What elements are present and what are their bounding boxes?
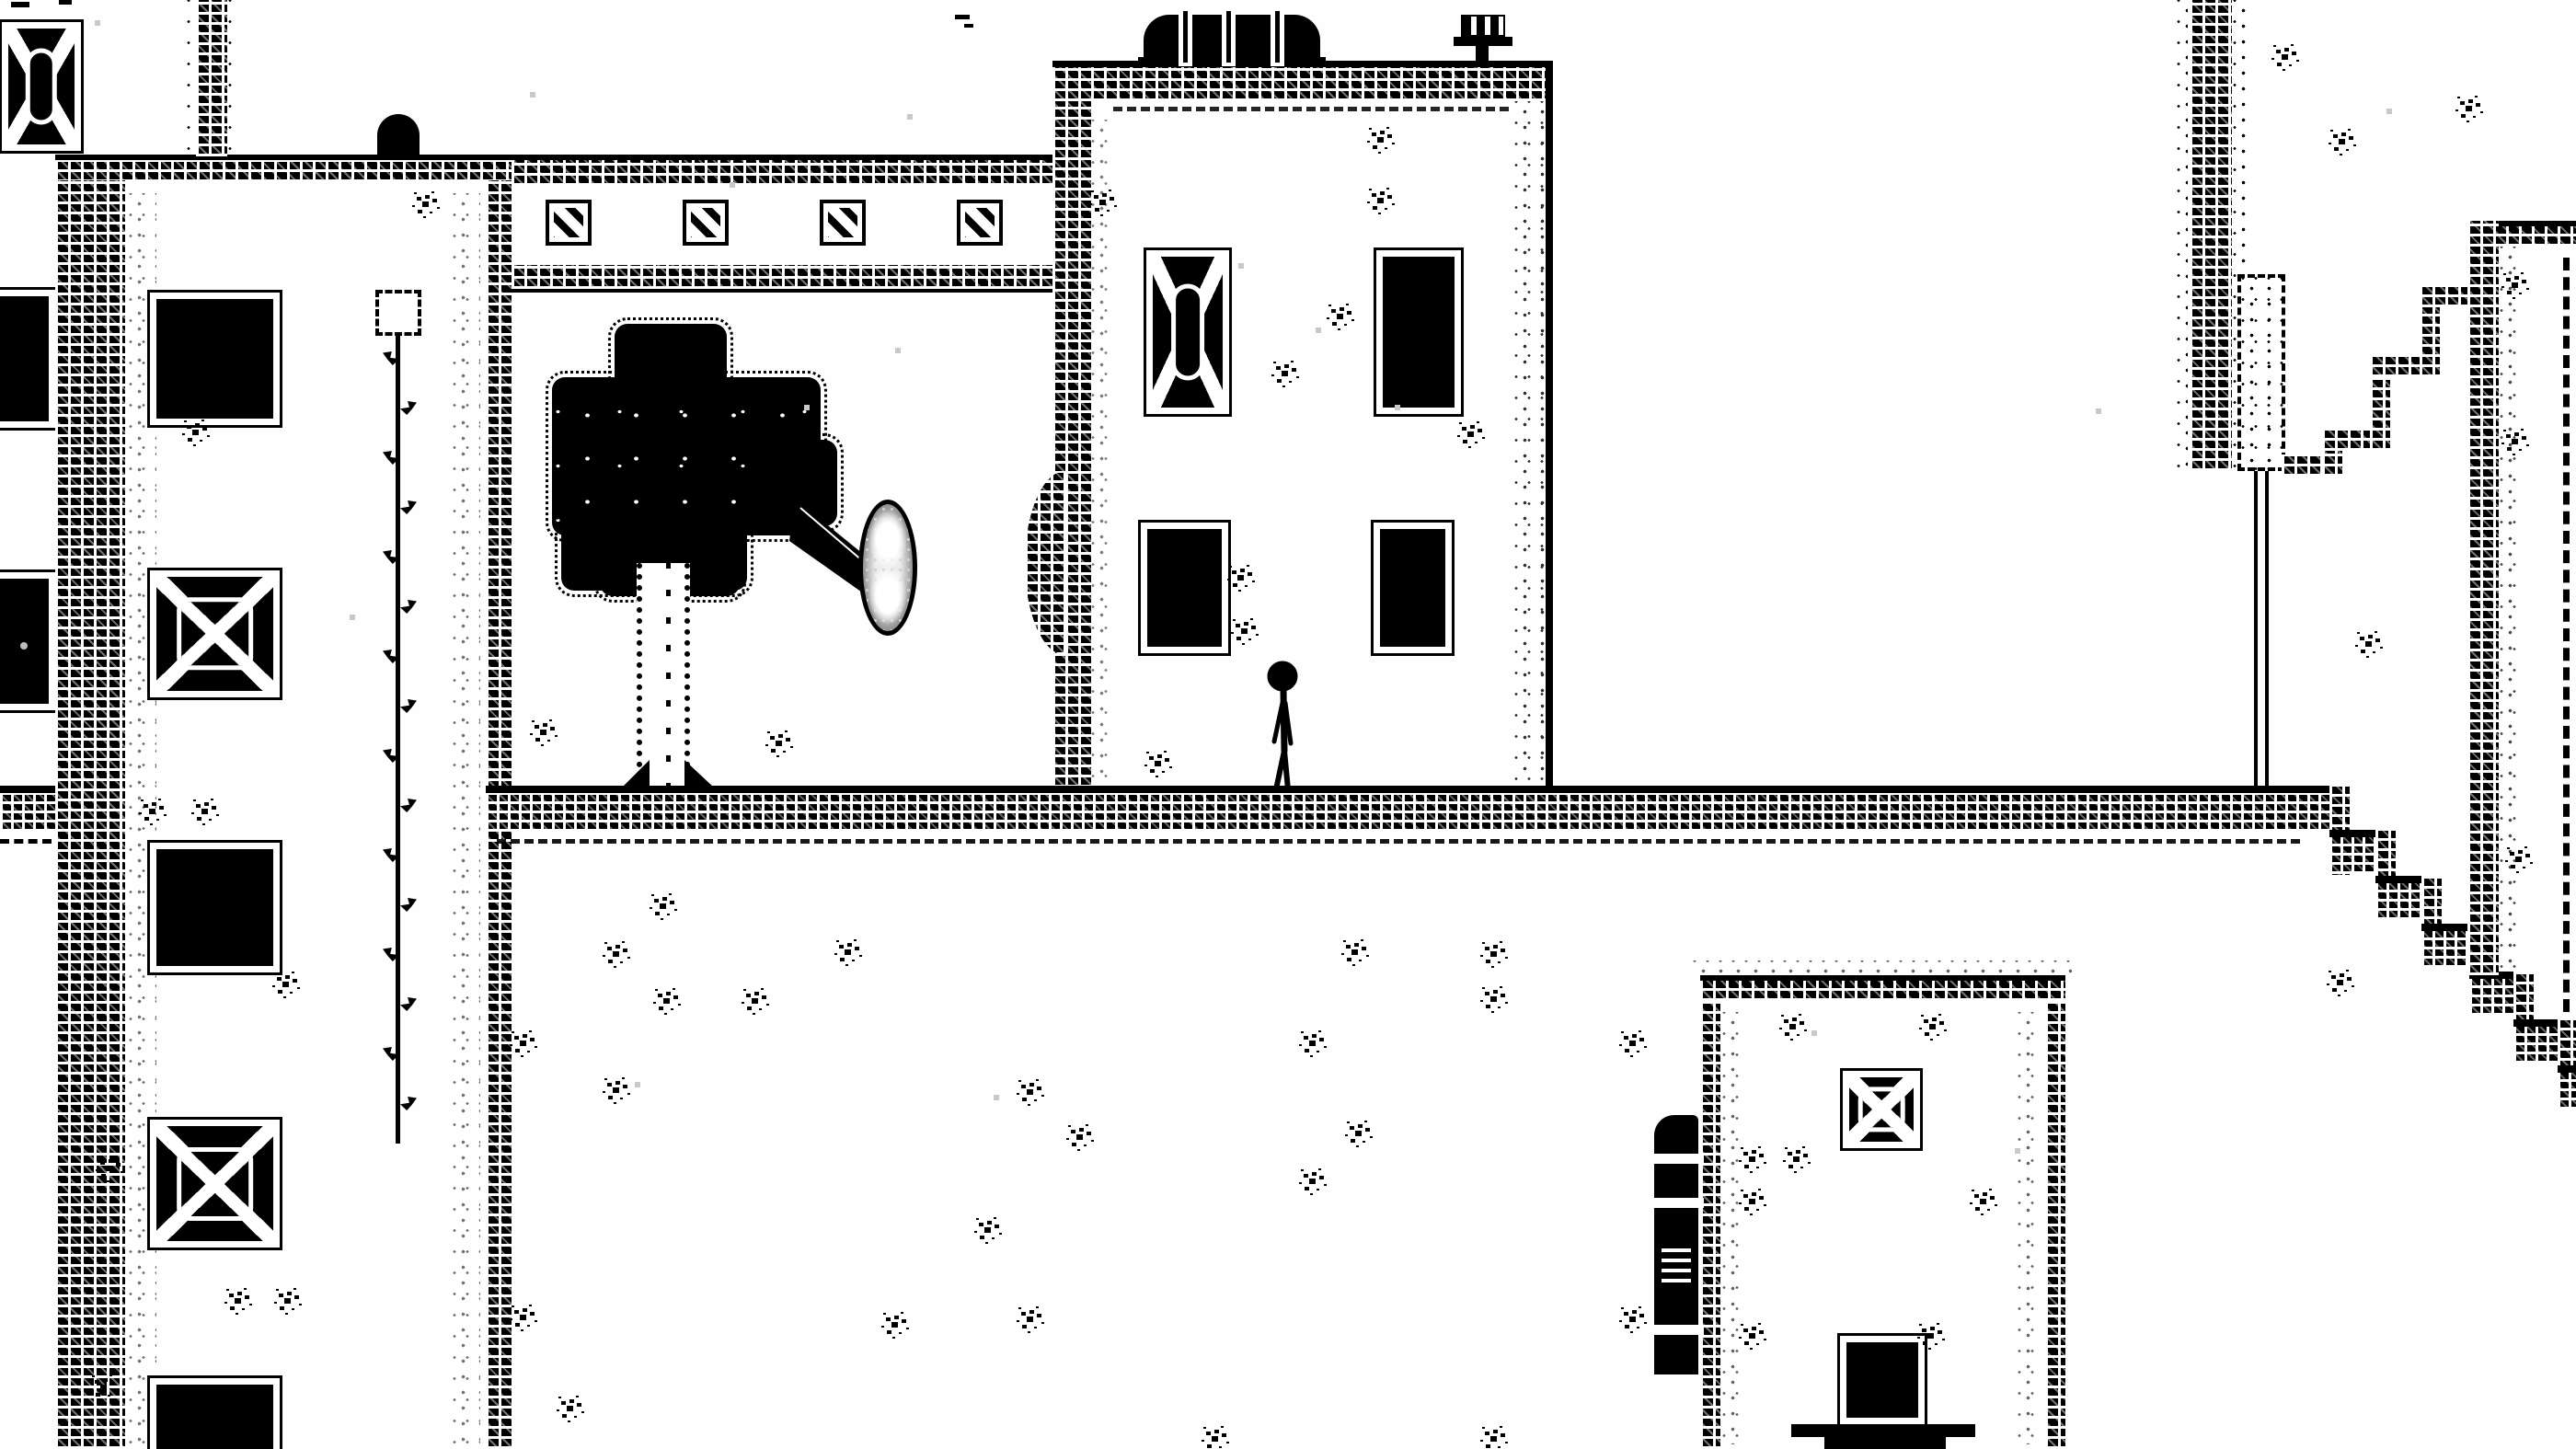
flower-decoration <box>1220 559 1260 596</box>
vine-thorn <box>400 500 417 514</box>
sky-dash <box>11 2 29 7</box>
mid-wall-bulge <box>1025 471 1065 655</box>
flower-decoration <box>265 966 305 1003</box>
flower-decoration <box>1776 1141 1816 1178</box>
flower-decoration <box>827 934 868 971</box>
flower-decoration <box>1910 1317 1950 1354</box>
mid-building-top <box>1052 61 1553 101</box>
flower-decoration <box>1450 416 1490 453</box>
flower-decoration <box>523 714 563 751</box>
flower-decoration <box>1912 1008 1952 1045</box>
left-building-left-wall <box>55 180 125 1449</box>
pipe-spring <box>1662 1244 1691 1282</box>
stair-tread <box>2375 876 2423 920</box>
faint-dot <box>1238 263 1244 269</box>
flower-decoration <box>1473 981 1513 1018</box>
window-plain <box>150 293 280 425</box>
pipe-joint <box>1649 1154 1704 1164</box>
flower-decoration <box>502 1299 543 1336</box>
pane-diagonal <box>820 200 866 246</box>
window-plain <box>150 843 280 972</box>
left-building-roof <box>55 155 512 182</box>
chimney-speckle <box>187 0 195 156</box>
tree-root <box>622 760 650 788</box>
flower-decoration <box>1292 1163 1332 1200</box>
upper-stair-tread <box>2282 454 2326 477</box>
faint-dot <box>2015 1148 2020 1154</box>
flower-decoration <box>549 1390 590 1427</box>
flower-decoration <box>2264 39 2305 75</box>
sky-dash <box>59 0 72 5</box>
vine-stem <box>396 334 400 1144</box>
upper-stair-tread <box>2420 285 2471 307</box>
flower-decoration <box>595 936 636 972</box>
lr-building-top <box>1700 975 2065 1001</box>
flower-decoration <box>2448 90 2489 127</box>
flower-decoration <box>1473 936 1513 972</box>
ground-left-fragment <box>0 786 55 832</box>
lr-building-right-wall <box>2045 1001 2065 1449</box>
flower-decoration <box>502 1025 543 1062</box>
pole-housing <box>2237 274 2285 471</box>
wall-speckle <box>2018 1012 2043 1444</box>
faint-dot <box>2096 408 2101 414</box>
faint-dot <box>2386 109 2392 114</box>
flower-decoration <box>1473 1420 1513 1449</box>
flower-decoration <box>2319 964 2360 1001</box>
faint-dot <box>1811 1030 1817 1036</box>
faint-dot <box>350 615 355 620</box>
pipe-strut <box>1179 7 1192 66</box>
flower-decoration <box>1962 1183 2003 1220</box>
window-ornate-topleft <box>2 22 81 151</box>
window-plain <box>1376 250 1461 414</box>
faint-dot <box>635 1082 640 1087</box>
flower-decoration <box>267 1282 307 1319</box>
pole <box>2254 471 2269 788</box>
flower-decoration <box>184 793 224 830</box>
faint-dot <box>1316 328 1321 333</box>
pipe-joint <box>1649 1198 1704 1208</box>
flower-decoration <box>1059 1119 1099 1156</box>
flower-decoration <box>642 888 683 925</box>
upper-stair-tread <box>2370 355 2421 377</box>
ceiling-dash <box>1113 107 1509 111</box>
pipe-joint <box>1649 1325 1704 1335</box>
player-character[interactable] <box>1262 661 1306 793</box>
antenna-stem <box>1476 46 1489 63</box>
vine-thorn <box>400 600 417 614</box>
stair-tread <box>2513 1019 2559 1064</box>
vine-hanger-box <box>375 290 421 336</box>
flower-decoration <box>874 1306 914 1343</box>
stair-tread <box>2558 1065 2576 1110</box>
flower-decoration <box>2494 267 2535 304</box>
window-ornate-x <box>150 1120 280 1248</box>
chimney-speckle <box>228 0 236 156</box>
roof-speckle <box>1693 960 2072 975</box>
flower-decoration <box>1009 1074 1050 1110</box>
wall-speckle <box>2177 0 2188 473</box>
pipe-strut <box>1222 7 1236 66</box>
sky-dash <box>964 24 973 28</box>
flower-decoration <box>1319 298 1360 335</box>
faint-dot <box>530 92 535 98</box>
flower-decoration <box>1292 1025 1332 1062</box>
faint-dot <box>1395 405 1400 410</box>
flower-decoration <box>83 1369 123 1406</box>
ground-dust <box>0 839 52 844</box>
window-ornate-x <box>150 570 280 697</box>
pane-diagonal <box>683 200 729 246</box>
window-sill <box>1791 1424 1975 1437</box>
tree-trunk <box>637 563 690 789</box>
window-sill <box>1824 1437 1946 1449</box>
tree-root <box>684 760 714 788</box>
flower-decoration <box>1772 1008 1812 1045</box>
flower-decoration <box>1360 182 1400 219</box>
faint-dot <box>895 348 901 353</box>
window-plain <box>1141 523 1228 653</box>
flower-decoration <box>1009 1301 1050 1338</box>
antenna-crown <box>1461 15 1505 37</box>
window-plain <box>1374 523 1452 653</box>
flower-decoration <box>217 1282 258 1319</box>
vine-thorn <box>400 898 417 912</box>
mid-building-right-wall <box>1546 61 1553 788</box>
vine-thorn <box>400 1097 417 1110</box>
wall-speckle <box>1722 1012 1748 1444</box>
flower-decoration <box>1334 934 1374 971</box>
ground-dust <box>497 839 2300 844</box>
faint-dot <box>994 1095 999 1100</box>
flower-decoration <box>1224 613 1264 650</box>
walkway-top-band <box>512 155 1052 186</box>
flower-decoration <box>1731 1317 1772 1354</box>
right-building-left-wall <box>2467 221 2499 975</box>
window-edge-left <box>0 290 55 428</box>
chimney-column <box>196 0 227 156</box>
stair-tread <box>2421 924 2471 968</box>
vine-thorn <box>400 799 417 812</box>
flower-decoration <box>175 414 215 451</box>
flower-decoration <box>2321 123 2362 160</box>
flower-decoration <box>1612 1301 1652 1338</box>
flower-decoration <box>88 1150 129 1187</box>
flower-decoration <box>2494 423 2535 460</box>
flower-decoration <box>1338 1115 1378 1152</box>
antenna-bar <box>1454 37 1512 46</box>
upper-stair-tread <box>2322 429 2374 451</box>
flower-decoration <box>646 983 686 1019</box>
right-tall-wall <box>2190 0 2232 471</box>
flower-decoration <box>1360 121 1400 158</box>
right-edge-dashes <box>2563 258 2570 1012</box>
pane-diagonal <box>546 200 592 246</box>
pane-diagonal <box>957 200 1003 246</box>
stair-tread <box>2329 830 2377 874</box>
flower-decoration <box>0 607 29 644</box>
flower-decoration <box>2498 841 2538 878</box>
vine-thorn <box>400 699 417 713</box>
flower-decoration <box>1082 184 1122 221</box>
faint-dot <box>907 114 913 120</box>
sky-dash <box>955 15 970 19</box>
wall-speckle <box>453 193 480 1444</box>
flower-decoration <box>1731 1183 1772 1220</box>
flower-decoration <box>1194 1420 1235 1449</box>
wall-speckle <box>1514 101 1546 782</box>
flower-decoration <box>1264 355 1305 392</box>
ground-main <box>486 786 2329 832</box>
flower-decoration <box>405 186 445 223</box>
flower-decoration <box>734 983 775 1019</box>
vine-thorn <box>400 401 417 415</box>
flower-decoration <box>1137 745 1178 782</box>
faint-dot <box>95 20 100 26</box>
flower-decoration <box>132 793 172 830</box>
flower-decoration <box>758 725 799 762</box>
portal[interactable] <box>858 500 917 636</box>
flower-decoration <box>595 1072 636 1109</box>
window-ornate-capsule <box>1146 250 1229 414</box>
game-viewport[interactable] <box>0 0 2576 1449</box>
dome-vent <box>377 114 420 155</box>
faint-dot <box>804 405 810 410</box>
flower-decoration <box>967 1212 1007 1248</box>
flower-decoration <box>1731 1141 1772 1178</box>
pipe-strut <box>1271 7 1284 66</box>
flower-decoration <box>1612 1025 1652 1062</box>
window-plain <box>150 1378 280 1449</box>
flower-decoration <box>2348 626 2388 662</box>
vine-thorn <box>400 997 417 1011</box>
walkway-bottom-band <box>512 265 1052 293</box>
window-ornate-x <box>1843 1071 1920 1148</box>
faint-dot <box>730 182 735 188</box>
lr-building-left-wall <box>1700 1001 1720 1449</box>
